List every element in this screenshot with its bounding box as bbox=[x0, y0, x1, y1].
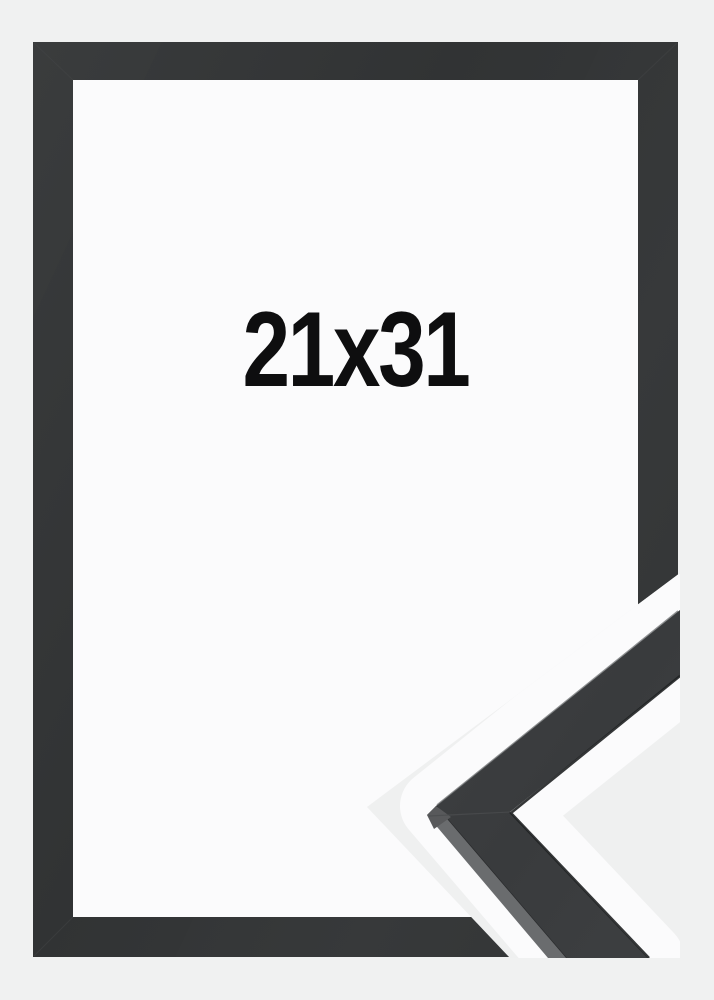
frame-front-photo bbox=[33, 42, 678, 957]
product-image: 21x31 bbox=[0, 0, 714, 1000]
size-label: 21x31 bbox=[130, 291, 582, 409]
